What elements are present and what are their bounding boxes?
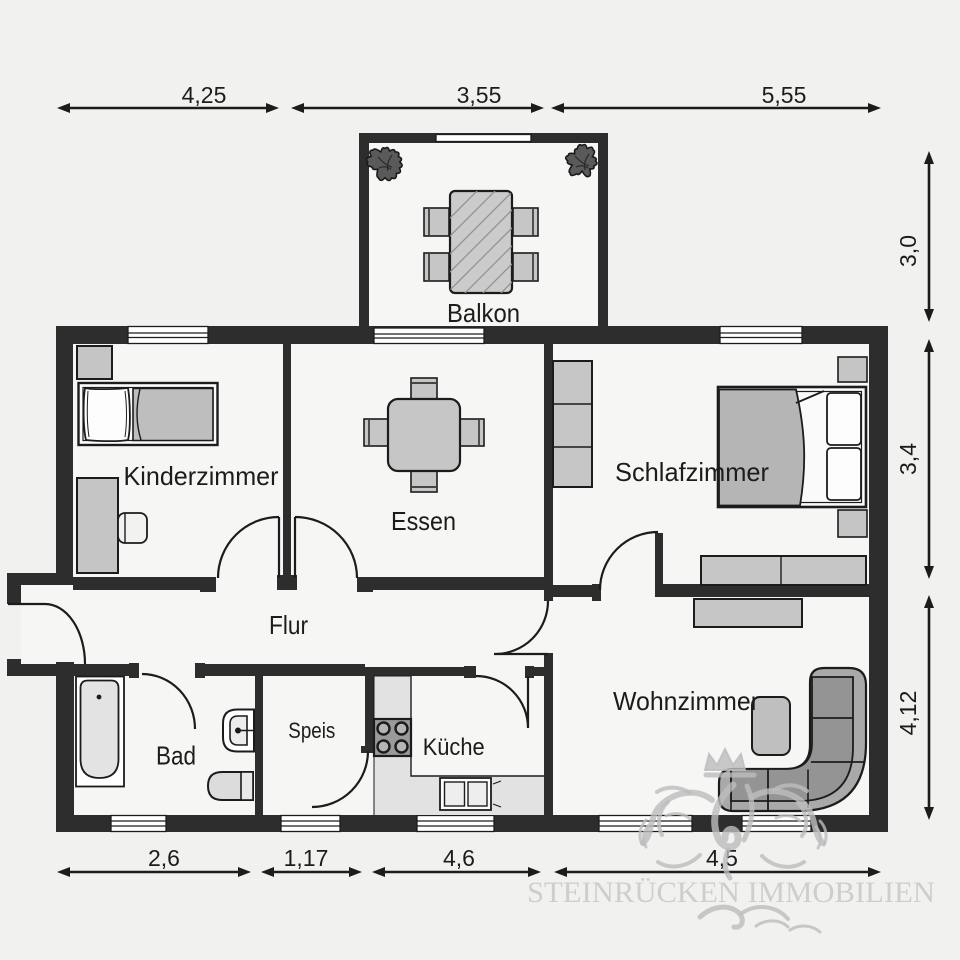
svg-text:4,6: 4,6 <box>443 845 475 871</box>
svg-text:4,12: 4,12 <box>895 691 921 736</box>
svg-text:2,6: 2,6 <box>148 845 180 871</box>
svg-text:STEINRÜCKEN IMMOBILIEN: STEINRÜCKEN IMMOBILIEN <box>527 876 935 909</box>
svg-text:3,55: 3,55 <box>457 82 502 108</box>
svg-text:Kinderzimmer: Kinderzimmer <box>124 461 279 491</box>
svg-text:Balkon: Balkon <box>447 298 520 328</box>
svg-text:1,17: 1,17 <box>284 845 329 871</box>
svg-text:Speis: Speis <box>288 718 335 743</box>
svg-text:3,4: 3,4 <box>895 443 921 475</box>
svg-text:Flur: Flur <box>269 610 308 640</box>
svg-text:3,0: 3,0 <box>895 235 921 267</box>
svg-text:Essen: Essen <box>391 506 456 536</box>
svg-text:4,25: 4,25 <box>182 82 227 108</box>
svg-text:Bad: Bad <box>156 741 196 771</box>
svg-text:Wohnzimmer: Wohnzimmer <box>613 686 759 716</box>
svg-text:Küche: Küche <box>423 734 485 761</box>
svg-text:5,55: 5,55 <box>762 82 807 108</box>
svg-text:Schlafzimmer: Schlafzimmer <box>615 457 769 487</box>
